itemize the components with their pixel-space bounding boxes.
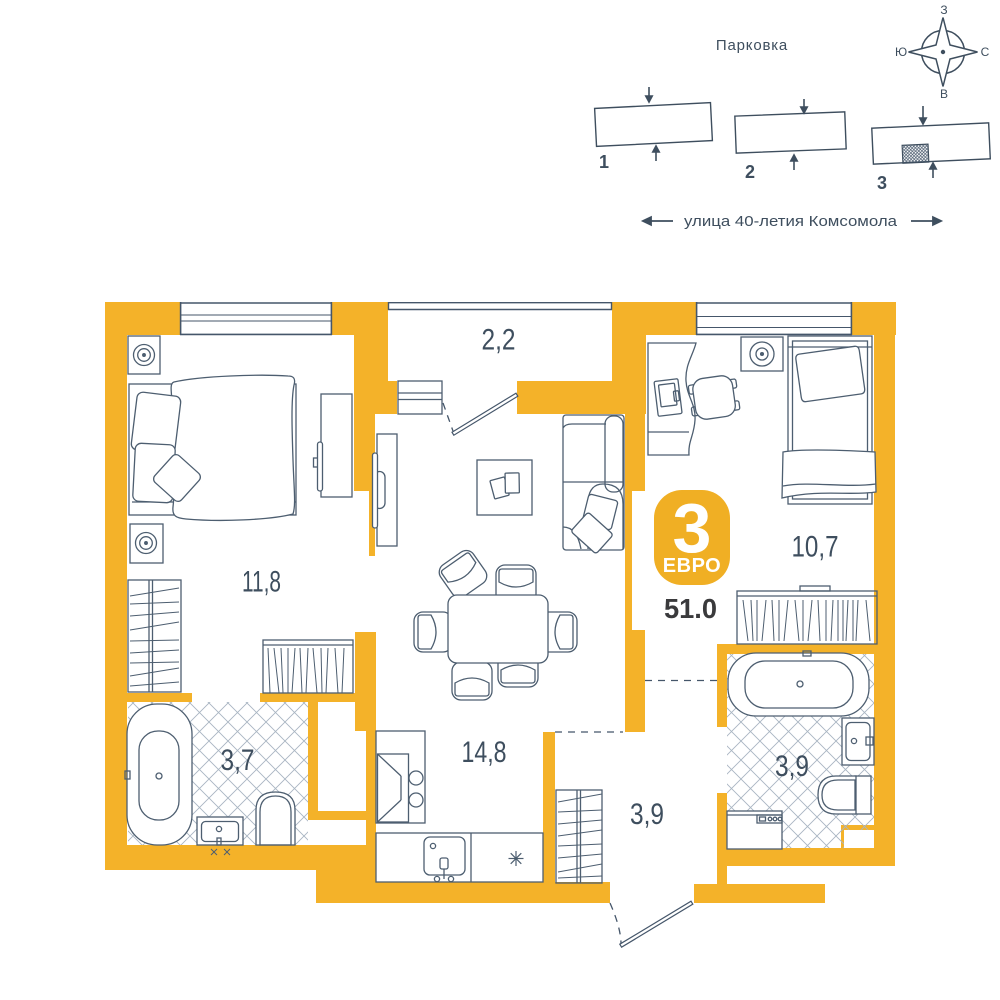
svg-text:В: В xyxy=(940,87,948,101)
svg-text:улица 40-летия Комсомола: улица 40-летия Комсомола xyxy=(684,213,898,230)
svg-text:3,9: 3,9 xyxy=(775,750,809,783)
svg-text:1: 1 xyxy=(599,152,609,172)
svg-text:14,8: 14,8 xyxy=(462,736,507,769)
svg-text:10,7: 10,7 xyxy=(792,531,839,564)
svg-text:3,7: 3,7 xyxy=(221,744,255,777)
svg-text:Ю: Ю xyxy=(895,45,907,59)
svg-text:3: 3 xyxy=(877,173,887,193)
svg-text:11,8: 11,8 xyxy=(242,566,281,599)
svg-text:Парковка: Парковка xyxy=(716,37,788,54)
svg-text:2,2: 2,2 xyxy=(482,324,516,357)
svg-text:2: 2 xyxy=(745,162,755,182)
svg-text:ЕВРО: ЕВРО xyxy=(663,555,721,577)
svg-text:3,9: 3,9 xyxy=(630,798,664,831)
svg-text:С: С xyxy=(981,45,990,59)
svg-text:51.0: 51.0 xyxy=(664,593,717,624)
svg-text:З: З xyxy=(940,3,947,17)
